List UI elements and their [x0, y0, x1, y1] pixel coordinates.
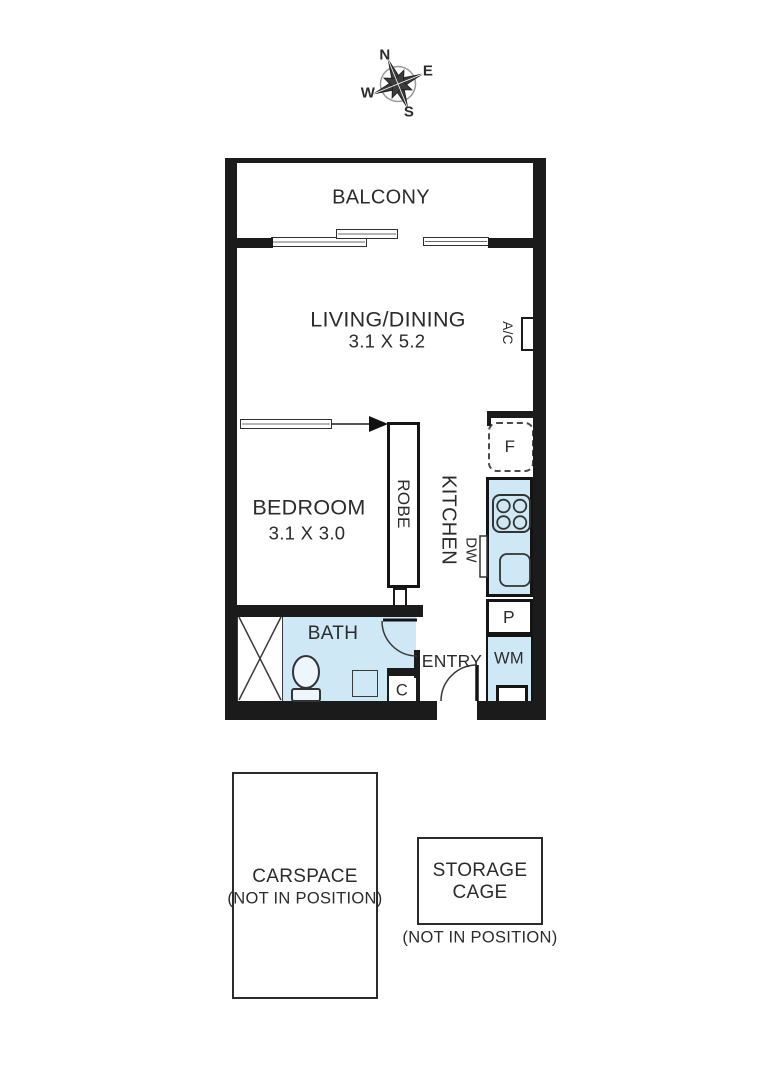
carspace-label: CARSPACE [252, 866, 358, 888]
wall-left [225, 158, 237, 720]
wall-right [533, 158, 546, 720]
bath-label: BATH [308, 623, 358, 645]
bath-top-wall [237, 605, 423, 617]
washing-machine-label: WM [494, 650, 524, 669]
pantry-label: P [503, 607, 515, 627]
cupboard-label: C [396, 682, 408, 701]
shower [237, 615, 283, 702]
bedroom-label: BEDROOM [252, 496, 365, 521]
compass-west-label: W [361, 84, 375, 101]
wall-bottom-right [477, 701, 546, 720]
kitchen-divider-wall [487, 411, 533, 418]
balcony-wall-stub-right [488, 238, 533, 248]
dishwasher-label: DW [462, 537, 479, 563]
kitchen-label: KITCHEN [437, 475, 460, 565]
cupboard-top-wall [387, 668, 420, 676]
wall-bottom-left [225, 701, 437, 720]
vanity-basin [352, 670, 378, 697]
living-dims: 3.1 X 5.2 [349, 330, 426, 351]
ac-label: A/C [499, 321, 515, 344]
balcony-slider-panel-offset [336, 229, 398, 239]
compass-south-label: S [404, 103, 414, 120]
balcony-label: BALCONY [332, 187, 430, 210]
wall-top [225, 158, 546, 163]
kitchen-divider-return [487, 411, 491, 426]
floorplan-page: N E W S BALCONY LIVING/DINING 3.1 X 5.2 … [0, 0, 763, 1080]
kitchen-bench [486, 477, 533, 597]
bedroom-slider-panel [240, 419, 332, 429]
carspace-note: (NOT IN POSITION) [227, 890, 382, 909]
fridge-label: F [505, 437, 516, 457]
balcony-wall-stub-left [237, 238, 273, 248]
compass-east-label: E [423, 62, 433, 79]
entry-label: ENTRY [422, 651, 483, 671]
robe-label: ROBE [393, 479, 413, 528]
storage-cage-note: (NOT IN POSITION) [402, 929, 557, 948]
balcony-slider-panel-right [423, 237, 489, 246]
bedroom-dims: 3.1 X 3.0 [269, 522, 346, 543]
compass-north-label: N [379, 46, 390, 63]
living-label: LIVING/DINING [310, 308, 466, 333]
storage-cage-label: STORAGE CAGE [425, 860, 535, 904]
slider-arrow [332, 416, 388, 432]
